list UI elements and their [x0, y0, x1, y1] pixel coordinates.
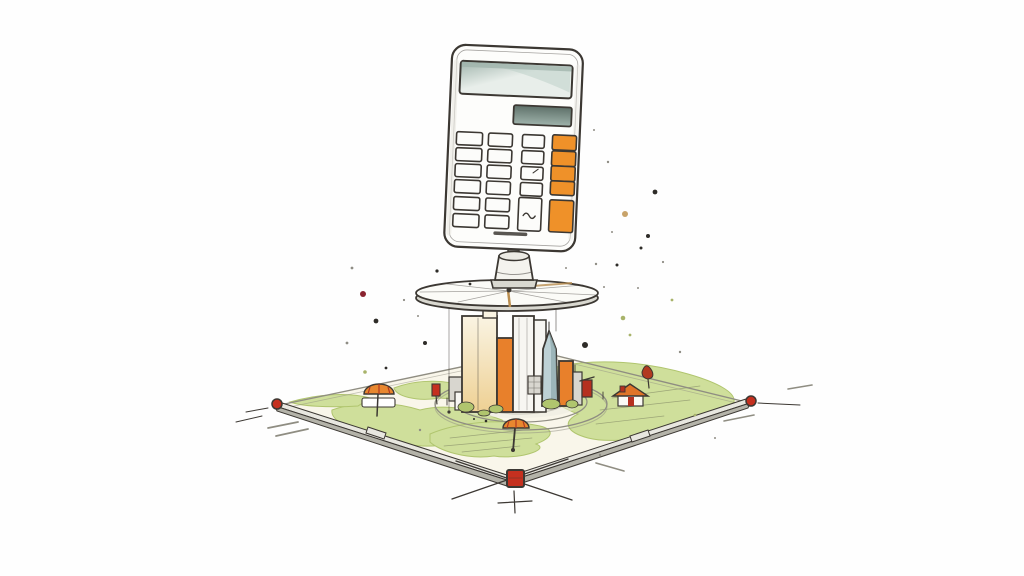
- calculator-key: [487, 165, 512, 179]
- mount-top: [499, 252, 529, 261]
- circle-shape: [511, 448, 515, 452]
- paint-splatter-dot: [662, 261, 664, 263]
- calculator-key: [485, 198, 510, 212]
- building-window-block: [528, 376, 541, 394]
- rect-shape: [432, 384, 440, 396]
- illustration-svg: calculator mounted on a surveyor turntab…: [0, 0, 1024, 576]
- building-cream-tower: [462, 316, 497, 412]
- ellipse-shape: [458, 402, 474, 412]
- calculator-key: [485, 215, 510, 229]
- paint-splatter-dot: [485, 420, 488, 423]
- path-shape: [268, 422, 308, 436]
- paint-splatter-dot: [473, 418, 475, 420]
- paint-splatter-dot: [419, 429, 421, 431]
- calculator-key: [487, 149, 512, 163]
- paint-splatter-dot: [374, 319, 379, 324]
- paint-splatter-dot: [385, 367, 388, 370]
- paint-splatter-dot: [582, 342, 588, 348]
- paint-splatter-dot: [595, 263, 597, 265]
- path-shape: [758, 403, 800, 405]
- rect-shape: [582, 380, 592, 397]
- paint-splatter-dot: [679, 351, 681, 353]
- calculator-key-orange: [551, 151, 576, 167]
- keypad-orange-keys: [548, 135, 576, 233]
- paint-splatter-dot: [346, 342, 349, 345]
- path-shape: [498, 491, 532, 513]
- calculator-key: [488, 133, 513, 147]
- paint-splatter-dot: [607, 161, 609, 163]
- ellipse-shape: [478, 410, 490, 416]
- path-shape: [596, 463, 624, 471]
- calculator-secondary-display: [513, 105, 572, 127]
- paint-splatter-dot: [593, 129, 595, 131]
- rect-shape: [628, 397, 634, 406]
- calculator-key-orange: [548, 200, 573, 233]
- paint-splatter-dot: [622, 211, 628, 217]
- calculator-key-orange: [550, 181, 575, 196]
- wire-left-tip: [447, 410, 450, 413]
- calculator-key: [455, 148, 482, 162]
- city-cluster: [449, 310, 582, 416]
- ellipse-shape: [566, 400, 578, 408]
- circle-shape: [272, 399, 282, 409]
- paint-splatter-dot: [640, 247, 643, 250]
- paint-splatter-dot: [646, 234, 650, 238]
- calculator-key: [521, 150, 544, 164]
- path-shape: [236, 408, 268, 422]
- paint-splatter-dot: [363, 370, 367, 374]
- paint-splatter-dot: [611, 231, 613, 233]
- calculator: [444, 44, 584, 252]
- rect-shape: [507, 470, 524, 487]
- paint-splatter-dot: [616, 264, 619, 267]
- ellipse-shape: [489, 405, 503, 413]
- rect-shape: [620, 386, 625, 392]
- red-house: [580, 377, 594, 397]
- paint-splatter-dot: [629, 334, 632, 337]
- paint-splatter-dot: [599, 454, 601, 456]
- illustration-canvas: calculator mounted on a surveyor turntab…: [0, 0, 1024, 576]
- paint-splatter-dot: [469, 283, 472, 286]
- paint-splatter-dot: [621, 316, 626, 321]
- paint-splatter-dot: [565, 267, 567, 269]
- paint-splatter-dot: [671, 299, 674, 302]
- paint-splatter-dot: [714, 437, 716, 439]
- path-shape: [377, 394, 378, 416]
- calculator-key: [486, 181, 511, 195]
- paint-splatter-dot: [435, 269, 438, 272]
- calculator-key-tall: [518, 197, 542, 231]
- calculator-key: [455, 164, 482, 178]
- calculator-key: [453, 197, 480, 211]
- paint-splatter-dot: [351, 267, 354, 270]
- paint-splatter-dot: [637, 287, 639, 289]
- ellipse-shape: [542, 399, 560, 409]
- calculator-key: [454, 180, 481, 194]
- calculator-key: [456, 132, 483, 146]
- paint-splatter-dot: [417, 315, 419, 317]
- calculator-key: [522, 134, 545, 148]
- calculator-key-orange: [551, 166, 576, 182]
- mount-flange: [491, 280, 537, 288]
- building-white-tower: [513, 316, 534, 412]
- calculator-key-orange: [552, 135, 577, 151]
- paint-splatter-dot: [403, 299, 405, 301]
- calculator-key: [520, 182, 543, 196]
- calculator-key: [453, 213, 480, 227]
- building-orange-tower-1: [497, 338, 513, 412]
- calculator-key: [521, 166, 544, 180]
- paint-splatter-dot: [694, 414, 697, 417]
- building-orange-tower-2: [559, 361, 573, 406]
- circle-shape: [746, 396, 756, 406]
- paint-splatter-dot: [653, 190, 658, 195]
- paint-splatter-dot: [360, 291, 366, 297]
- paint-splatter-dot: [603, 286, 605, 288]
- paint-splatter-dot: [423, 341, 427, 345]
